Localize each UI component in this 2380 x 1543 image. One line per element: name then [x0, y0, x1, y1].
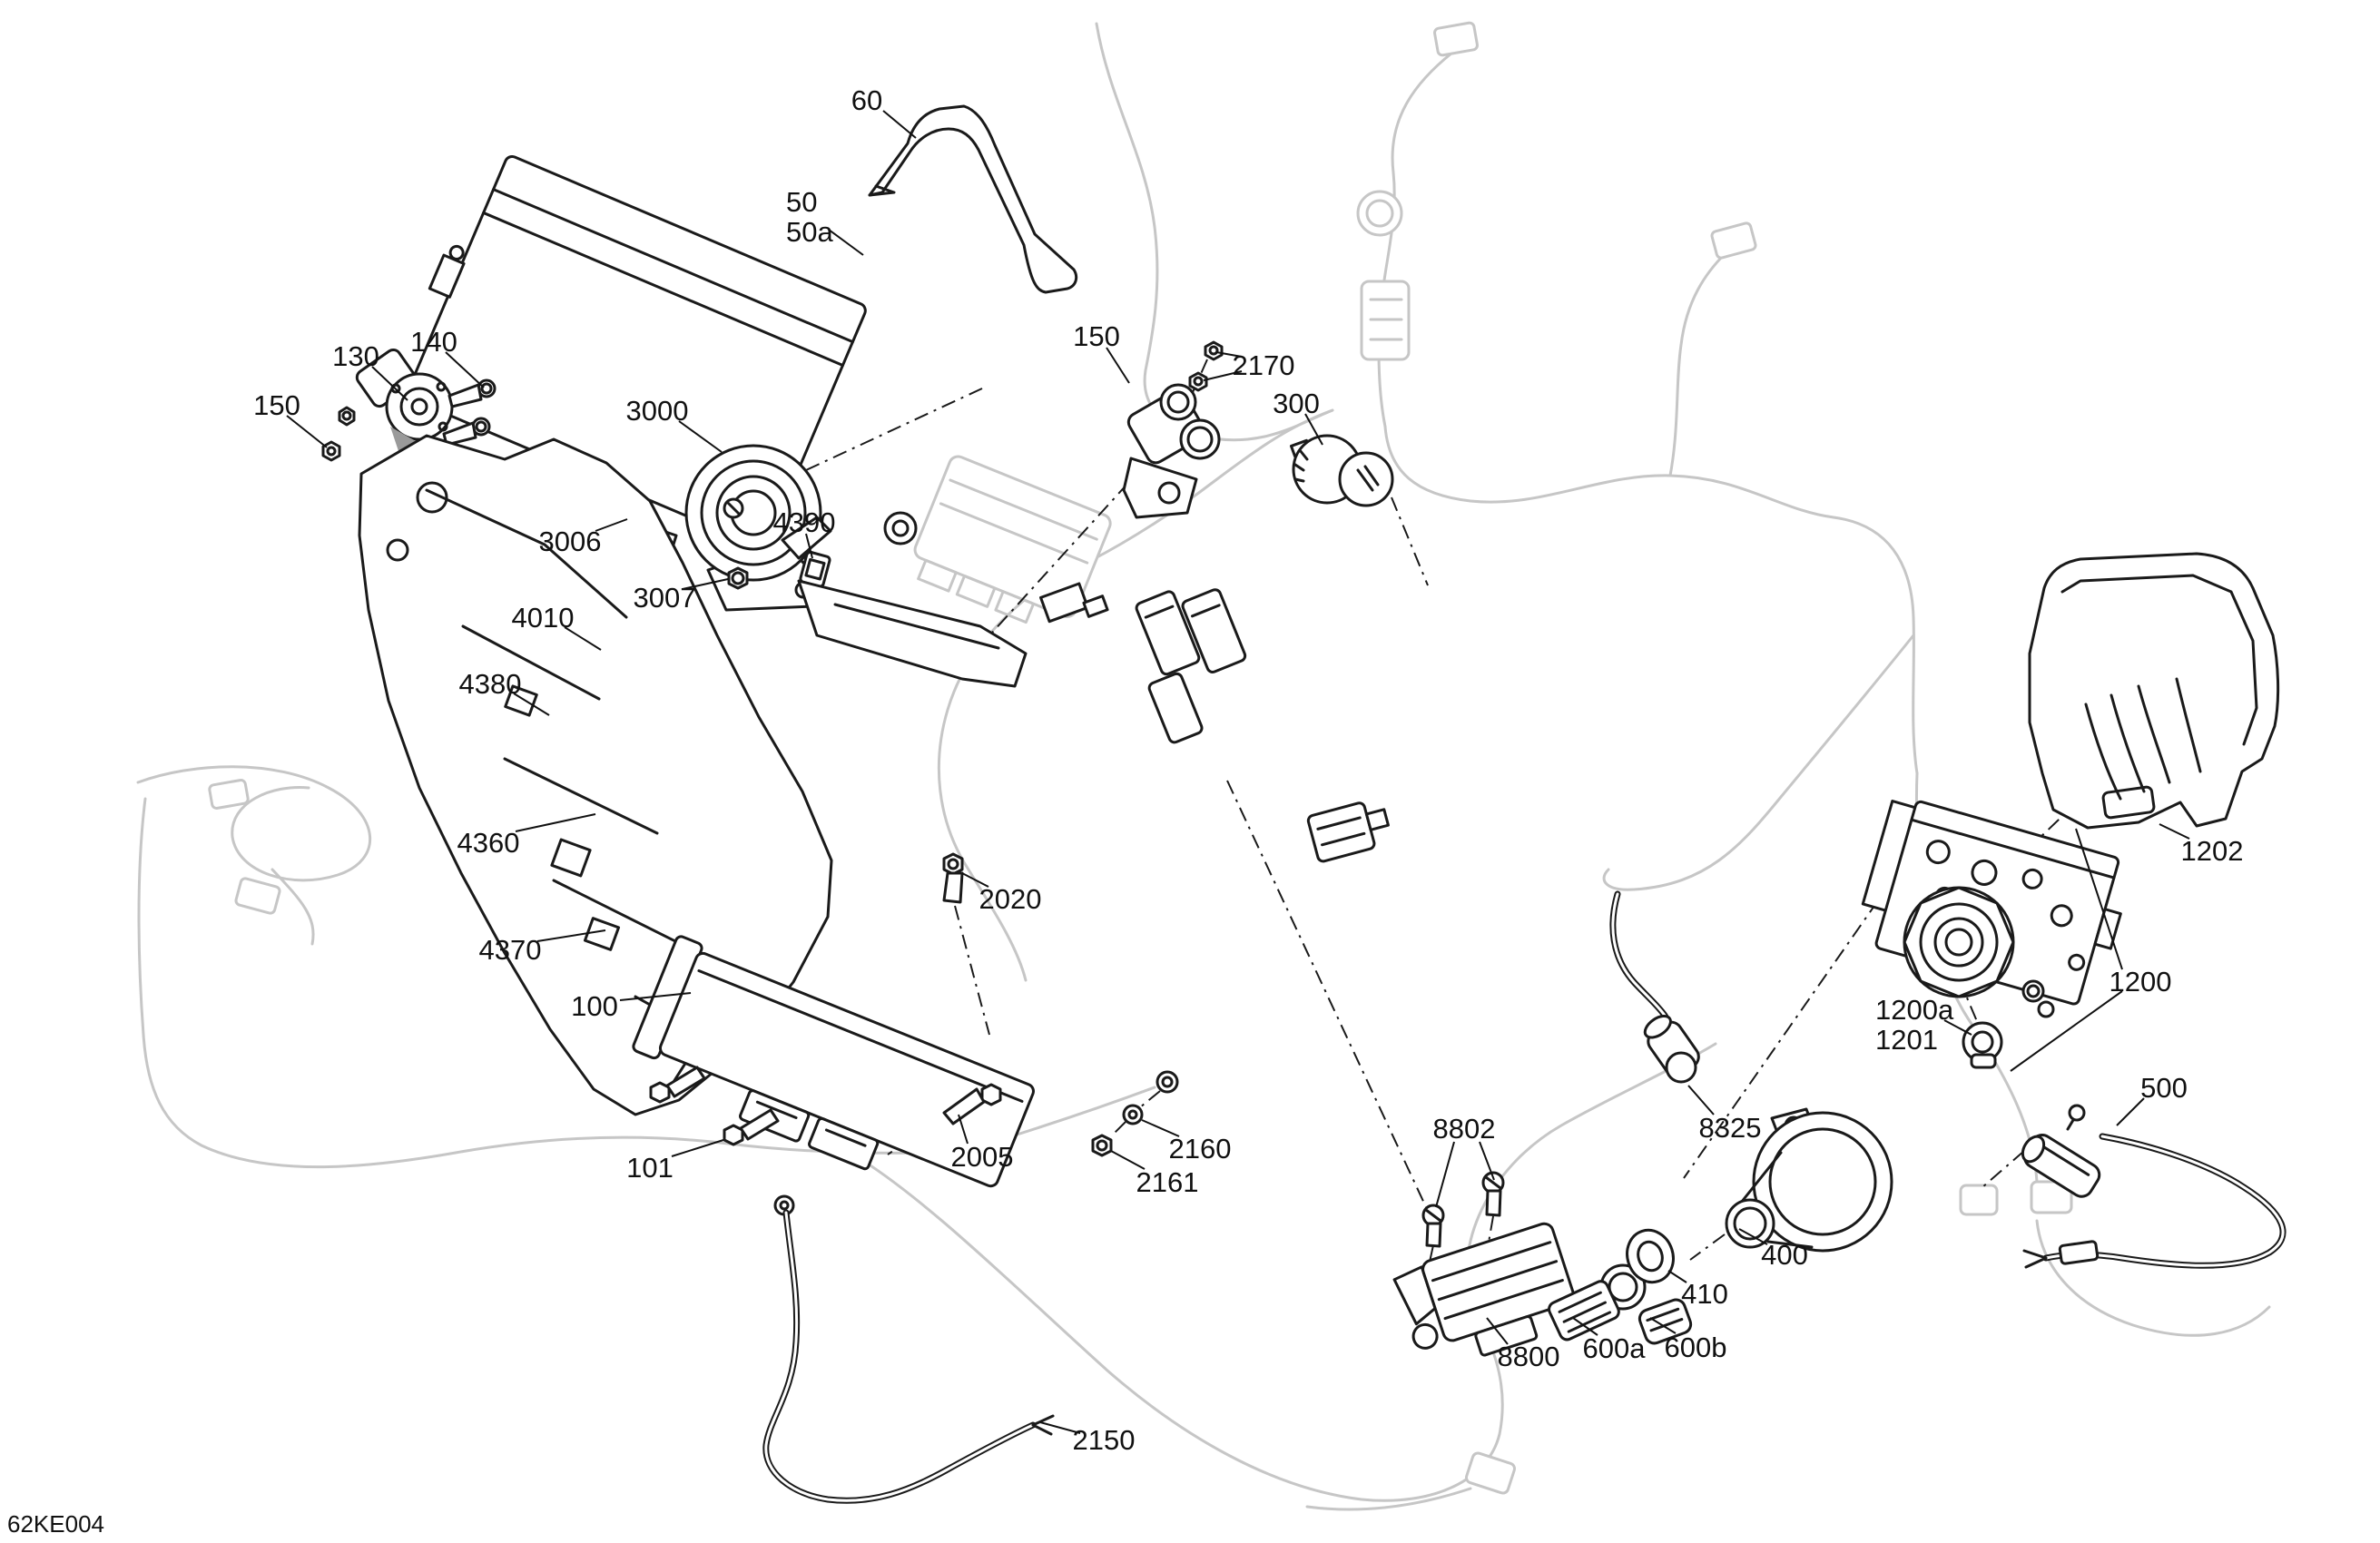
nut-3007 — [729, 568, 747, 588]
grommet-upper — [885, 513, 916, 544]
callout-leader-8802 — [1436, 1142, 1454, 1207]
bolt-2020 — [944, 854, 962, 902]
diagram-code: 62KE004 — [7, 1510, 104, 1538]
callout-leader-60 — [883, 111, 916, 138]
callout-label-1200: 1200 — [2110, 966, 2172, 998]
grommet-1201 — [1963, 1023, 2001, 1067]
callout-label-4390: 4390 — [773, 506, 836, 538]
harness-connector-ghost — [1465, 1451, 1516, 1494]
callout-label-101: 101 — [626, 1152, 674, 1184]
ignition-switch-300 — [1291, 436, 1392, 506]
harness-connector-ghost — [235, 878, 280, 914]
callout-label-8800: 8800 — [1498, 1341, 1560, 1372]
callout-leader-50-50a — [829, 230, 863, 255]
nuts-2170 — [1190, 342, 1222, 390]
battery-strap — [870, 106, 1077, 292]
sensor-8325 — [1613, 894, 1703, 1082]
harness-connector-ghost — [1961, 1185, 1997, 1214]
callout-label-2150: 2150 — [1073, 1424, 1136, 1456]
callout-label-410: 410 — [1681, 1278, 1728, 1310]
callout-label-150-mid: 150 — [1073, 320, 1120, 352]
callout-leader-8325 — [1688, 1086, 1714, 1115]
callout-label-1200a-1201: 1200a1201 — [1875, 994, 1954, 1056]
callout-label-3006: 3006 — [539, 526, 602, 557]
callout-label-4360: 4360 — [457, 827, 520, 859]
harness-connector-ghost — [209, 780, 249, 810]
callout-leader-101 — [672, 1140, 723, 1156]
connector-mid — [1307, 797, 1393, 862]
callout-label-4370: 4370 — [479, 934, 542, 966]
callout-label-300: 300 — [1273, 388, 1320, 419]
callout-label-130: 130 — [332, 340, 379, 372]
harness-grommet-ghost — [1358, 192, 1401, 235]
callout-label-8802: 8802 — [1433, 1113, 1496, 1145]
relay-bank — [1118, 574, 1266, 744]
diagram-canvas: 605050a130140150300030063007439040104380… — [0, 0, 2380, 1543]
harness-connector-ghost — [1434, 22, 1479, 55]
callout-label-140: 140 — [410, 326, 457, 358]
washer-2160 — [1124, 1106, 1142, 1124]
screws-8802 — [1423, 1173, 1503, 1246]
callout-label-2005: 2005 — [951, 1141, 1014, 1173]
callout-label-150-left: 150 — [253, 389, 300, 421]
abs-bracket-1202 — [2030, 554, 2278, 828]
callout-label-2020: 2020 — [979, 883, 1042, 915]
callout-label-600b: 600b — [1665, 1332, 1727, 1363]
callout-label-4380: 4380 — [459, 668, 522, 700]
callout-leader-150-mid — [1106, 348, 1129, 383]
callout-label-500: 500 — [2140, 1072, 2188, 1104]
callout-label-1202: 1202 — [2181, 835, 2244, 867]
parts-diagram-page: 605050a130140150300030063007439040104380… — [0, 0, 2380, 1543]
harness-connector-ghost — [1711, 222, 1756, 259]
callout-label-400: 400 — [1761, 1239, 1808, 1271]
callout-label-8325: 8325 — [1699, 1112, 1762, 1144]
callout-label-2170: 2170 — [1233, 349, 1295, 381]
nut-150-left — [323, 408, 354, 460]
battery-cable-2150 — [766, 1196, 1053, 1500]
callout-label-3007: 3007 — [634, 582, 696, 614]
nut-2161 — [1093, 1135, 1111, 1155]
callout-label-2161: 2161 — [1136, 1166, 1199, 1198]
callout-label-2160: 2160 — [1169, 1133, 1232, 1165]
callout-label-3000: 3000 — [626, 395, 689, 427]
solenoid-150-mid — [1124, 385, 1219, 517]
callout-label-4010: 4010 — [512, 602, 575, 634]
callout-label-60: 60 — [851, 84, 882, 116]
callout-label-100: 100 — [571, 990, 618, 1022]
callout-label-600a: 600a — [1583, 1332, 1647, 1364]
callout-label-50-50a: 5050a — [786, 186, 833, 248]
ring-terminal — [1157, 1072, 1177, 1092]
